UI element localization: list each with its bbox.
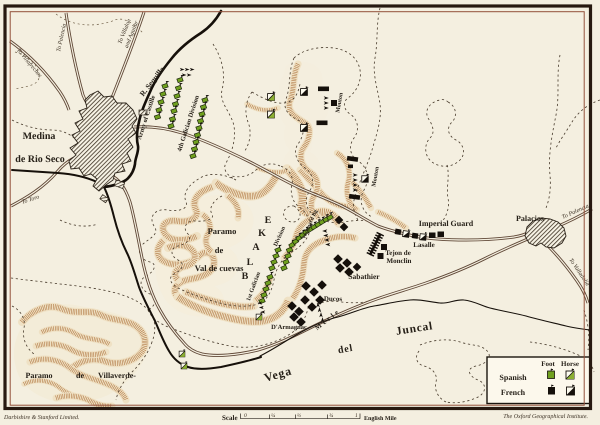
svg-text:Ducos: Ducos: [324, 295, 343, 303]
svg-text:de: de: [76, 371, 84, 380]
svg-text:Spanish: Spanish: [499, 373, 527, 382]
svg-text:Medina: Medina: [23, 131, 56, 142]
svg-text:A: A: [252, 242, 260, 253]
svg-text:French: French: [501, 388, 526, 397]
svg-text:Villaverde-: Villaverde-: [98, 371, 136, 380]
svg-text:0: 0: [244, 413, 247, 419]
svg-text:Paramo: Paramo: [25, 371, 52, 380]
svg-text:E: E: [265, 215, 272, 226]
svg-text:Darbishire & Stanford Limited.: Darbishire & Stanford Limited.: [3, 414, 80, 421]
svg-text:Paramo: Paramo: [208, 226, 237, 236]
svg-text:L: L: [247, 257, 254, 268]
svg-text:Scale: Scale: [222, 414, 238, 422]
svg-text:Imperial Guard: Imperial Guard: [419, 219, 474, 228]
svg-text:K: K: [258, 228, 266, 239]
svg-text:Lasalle: Lasalle: [413, 241, 434, 249]
svg-text:Palacios: Palacios: [516, 214, 544, 223]
svg-text:¼: ¼: [271, 413, 275, 419]
svg-text:½: ½: [297, 412, 301, 419]
svg-text:de: de: [215, 245, 224, 255]
svg-text:Monclin: Monclin: [387, 257, 412, 265]
svg-text:D'Armagnac: D'Armagnac: [271, 324, 307, 331]
svg-text:Val de cuevas: Val de cuevas: [195, 263, 244, 273]
svg-text:de Rio Seco: de Rio Seco: [15, 154, 64, 165]
svg-text:¾: ¾: [329, 413, 333, 419]
svg-text:Foot: Foot: [541, 360, 555, 368]
svg-text:Horse: Horse: [561, 360, 579, 368]
svg-text:English Mile: English Mile: [364, 416, 397, 422]
svg-text:Tejon de: Tejon de: [385, 249, 411, 257]
svg-text:The Oxford Geographical Instit: The Oxford Geographical Institute.: [503, 413, 588, 420]
svg-text:1: 1: [355, 413, 358, 419]
svg-text:Sabathier: Sabathier: [348, 272, 380, 281]
svg-text:B: B: [242, 271, 249, 282]
